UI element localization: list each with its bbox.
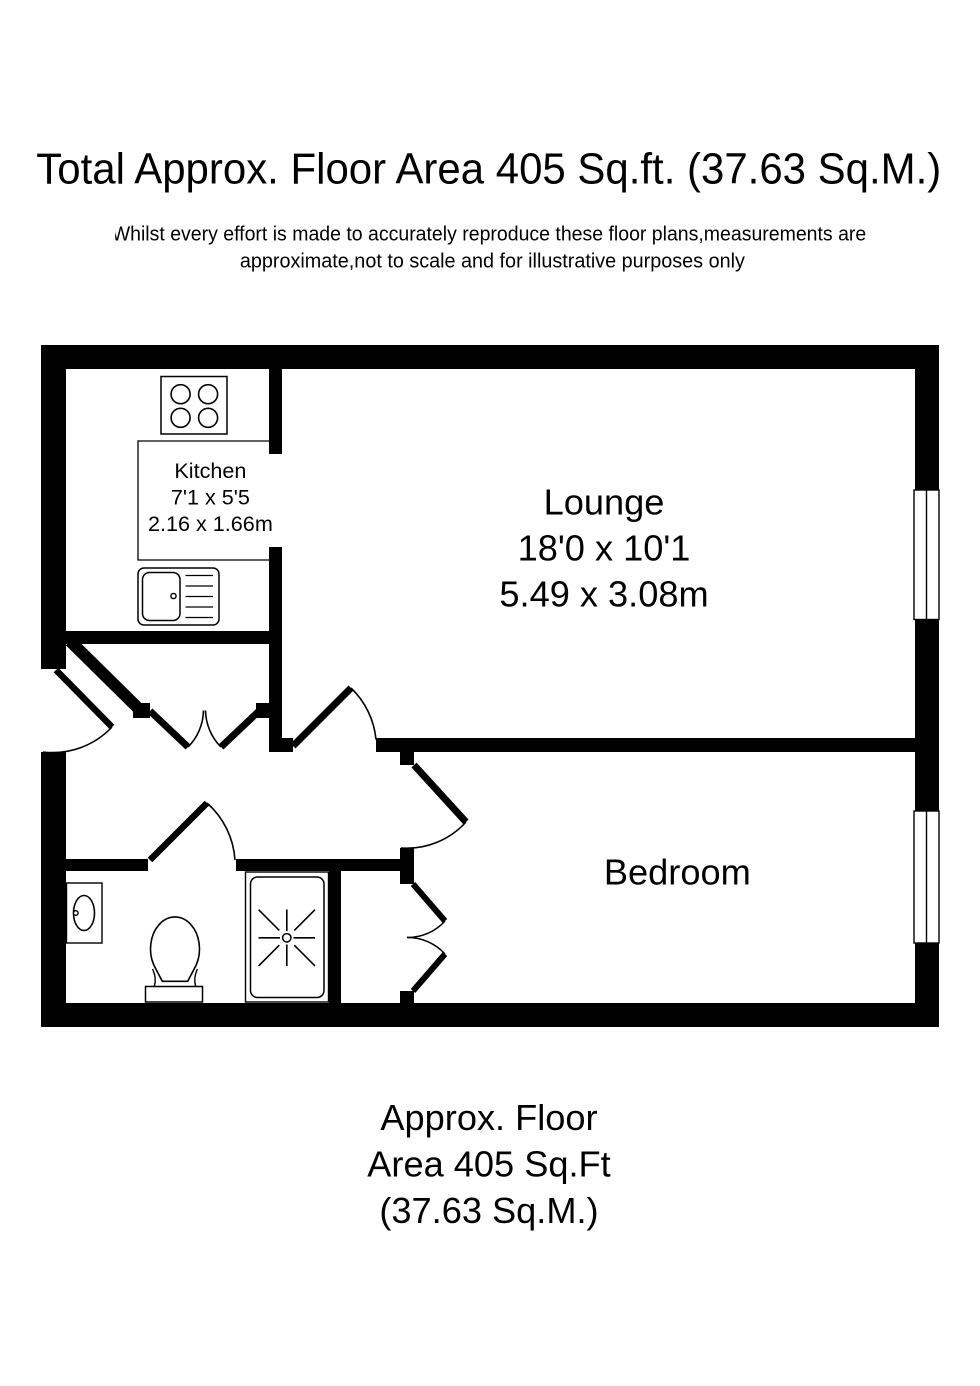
svg-text:Approx. Floor: Approx. Floor xyxy=(380,1097,597,1138)
svg-text:2.16 x 1.66m: 2.16 x 1.66m xyxy=(148,511,273,536)
svg-text:(37.63 Sq.M.): (37.63 Sq.M.) xyxy=(379,1190,598,1231)
svg-text:Bedroom: Bedroom xyxy=(604,852,751,893)
svg-text:5.49 x 3.08m: 5.49 x 3.08m xyxy=(499,574,708,615)
svg-text:18'0 x 10'1: 18'0 x 10'1 xyxy=(518,528,691,569)
svg-text:7'1 x 5'5: 7'1 x 5'5 xyxy=(171,485,250,510)
svg-text:Area 405 Sq.Ft: Area 405 Sq.Ft xyxy=(367,1144,610,1185)
svg-text:Whilst every effort is made to: Whilst every effort is made to accuratel… xyxy=(112,224,867,246)
svg-text:Lounge: Lounge xyxy=(544,482,665,523)
svg-text:Total Approx. Floor Area 405 S: Total Approx. Floor Area 405 Sq.ft. (37.… xyxy=(36,145,941,194)
svg-text:Kitchen: Kitchen xyxy=(174,458,246,483)
svg-text:approximate,not to scale and f: approximate,not to scale and for illustr… xyxy=(240,251,745,273)
